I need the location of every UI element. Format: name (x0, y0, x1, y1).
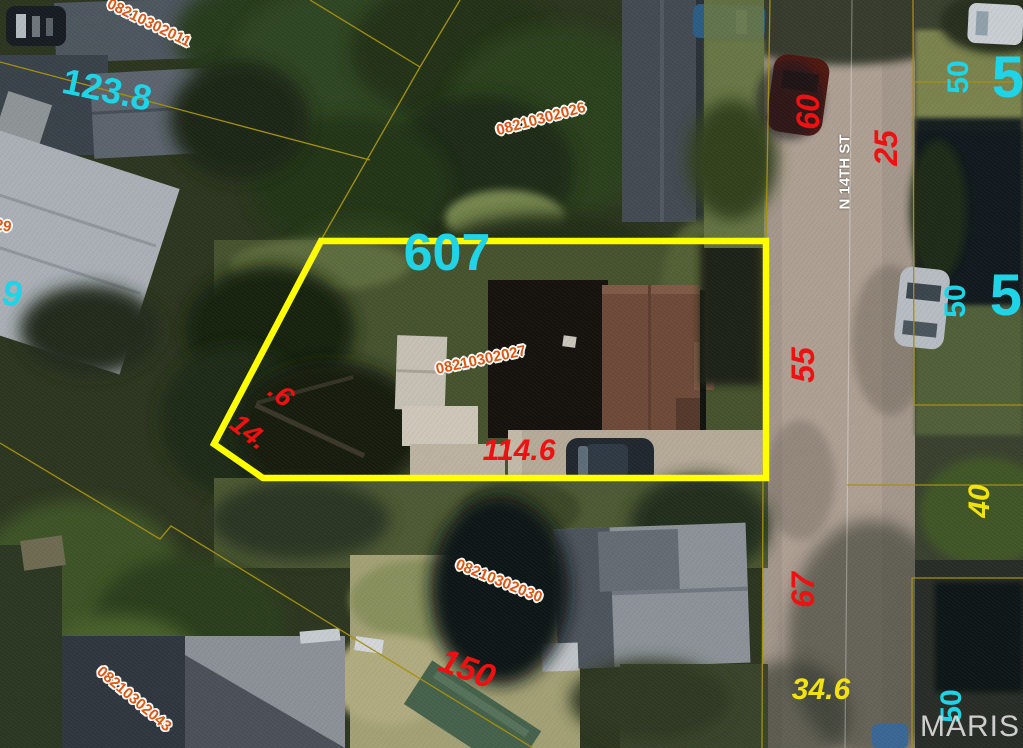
subject-parcel-ground (160, 220, 768, 500)
driveway-car (566, 438, 654, 484)
maris-watermark: MARIS (920, 712, 1020, 742)
aerial-imagery (0, 0, 1023, 748)
dark-car (6, 6, 66, 46)
silver-car (893, 266, 951, 351)
street-name-label: N 14TH ST (838, 134, 853, 209)
south-area (0, 475, 770, 748)
blue-car-bottom (872, 724, 908, 748)
white-van (967, 3, 1023, 46)
aerial-map-canvas[interactable]: 08210302011123.8082103020266070821030202… (0, 0, 1023, 748)
subject-house-roof (488, 280, 714, 438)
southwest-house (60, 628, 384, 748)
